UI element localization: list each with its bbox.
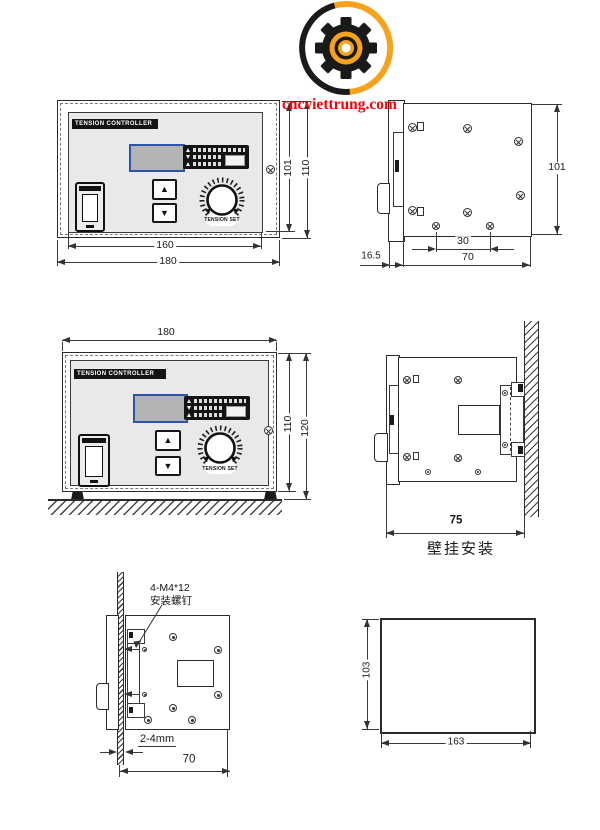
dim-arrow bbox=[381, 740, 389, 746]
side-switch-bump bbox=[374, 433, 388, 462]
dim-line bbox=[386, 533, 524, 534]
screw-icon bbox=[454, 454, 462, 462]
side-switch-bump bbox=[377, 183, 390, 214]
dim-arrow bbox=[364, 619, 370, 627]
extension-line bbox=[278, 491, 296, 492]
dim-arrow bbox=[286, 224, 292, 232]
dim-arrow bbox=[303, 353, 309, 361]
dim-arrow bbox=[62, 337, 70, 343]
dim-arrow bbox=[395, 262, 403, 268]
extension-line bbox=[530, 236, 531, 267]
dim-arrow bbox=[286, 353, 292, 361]
mounting-hole bbox=[144, 716, 152, 724]
screw-icon bbox=[264, 426, 273, 435]
screw-icon bbox=[403, 453, 411, 461]
screw-icon bbox=[266, 165, 275, 174]
extension-line bbox=[362, 729, 379, 730]
extension-line bbox=[62, 342, 63, 351]
extension-line bbox=[276, 342, 277, 351]
indicator-segment bbox=[193, 148, 245, 152]
dim-wall-depth: 75 bbox=[448, 515, 465, 528]
switch-mark bbox=[86, 225, 94, 228]
gear-logo-icon bbox=[296, 0, 396, 100]
dim-depth: 70 bbox=[460, 252, 476, 264]
screw-icon bbox=[463, 124, 472, 133]
dim-bezel-depth: 16.5 bbox=[359, 251, 382, 262]
dim-arrow bbox=[57, 259, 65, 265]
mounting-hole bbox=[214, 691, 222, 699]
dim-arrow bbox=[522, 262, 530, 268]
mounting-hole bbox=[169, 633, 177, 641]
dim-arrow bbox=[272, 259, 280, 265]
dim-arrow bbox=[304, 230, 310, 238]
screw-icon bbox=[454, 376, 462, 384]
dim-height: 110 bbox=[283, 414, 295, 435]
extension-line bbox=[282, 238, 311, 239]
switch-mark bbox=[90, 480, 98, 483]
increase-button[interactable]: ▲ bbox=[152, 179, 177, 200]
mode-indicator-icon bbox=[187, 413, 191, 417]
down-indicator-icon bbox=[187, 406, 191, 410]
indicator-segment bbox=[194, 399, 246, 403]
dim-arrow bbox=[554, 226, 560, 234]
indicator-tag bbox=[226, 406, 246, 417]
mounting-hole bbox=[475, 469, 481, 475]
dim-tail bbox=[498, 249, 514, 250]
dim-inner-width: 160 bbox=[154, 240, 176, 252]
indicator-segment bbox=[194, 406, 222, 410]
cutout-rectangle bbox=[380, 618, 536, 734]
mounting-hole bbox=[169, 704, 177, 712]
screw-icon bbox=[408, 123, 417, 132]
side-connector bbox=[395, 160, 399, 172]
power-switch[interactable] bbox=[75, 182, 105, 232]
screw-icon bbox=[403, 376, 411, 384]
down-arrow-icon: ▼ bbox=[164, 462, 173, 471]
lcd-display bbox=[133, 394, 188, 423]
clamp-screw-shaft bbox=[132, 694, 140, 695]
extension-line bbox=[532, 234, 562, 235]
mounting-hole bbox=[188, 716, 196, 724]
lcd-display bbox=[129, 144, 185, 172]
dim-arrow bbox=[303, 491, 309, 499]
screw-note-line1: 4-M4*12 bbox=[150, 582, 192, 595]
dim-arrow bbox=[253, 243, 261, 249]
knob-label: TENSION SET bbox=[204, 217, 240, 223]
dim-total-height: 120 bbox=[300, 417, 312, 439]
switch-rocker bbox=[82, 194, 98, 222]
dim-panel-height: 101 bbox=[283, 157, 295, 179]
dim-arrow bbox=[490, 246, 498, 252]
dim-tail bbox=[133, 752, 143, 753]
screw-icon bbox=[486, 222, 494, 230]
front-view-table: TENSION CONTROLLER ▲ ▼ TENSION SET bbox=[62, 352, 277, 492]
dim-arrow bbox=[364, 721, 370, 729]
screw-icon bbox=[408, 206, 417, 215]
side-switch-bump bbox=[96, 683, 109, 710]
extension-line bbox=[524, 517, 525, 538]
dim-arrow bbox=[68, 243, 76, 249]
dim-panel-thickness: 2-4mm bbox=[138, 733, 176, 747]
dim-line bbox=[62, 340, 277, 341]
dim-line bbox=[120, 771, 230, 772]
bracket-hole bbox=[142, 692, 147, 697]
dimension-drawing-page: TENSION CONTROLLER ▲ ▼ TENSION SET bbox=[0, 0, 600, 830]
switch-label-strip bbox=[79, 186, 101, 191]
indicator-segment bbox=[193, 162, 221, 166]
mount-slot bbox=[417, 207, 424, 216]
dim-arrow bbox=[382, 262, 390, 268]
switch-rocker bbox=[85, 446, 103, 477]
decrease-button[interactable]: ▼ bbox=[152, 203, 177, 223]
knob-label: TENSION SET bbox=[202, 466, 238, 472]
mounting-hole bbox=[214, 646, 222, 654]
dim-cutout-height: 103 bbox=[362, 660, 373, 681]
bracket-hook-nub bbox=[518, 446, 523, 454]
side-connector bbox=[390, 415, 394, 425]
dim-arrow bbox=[386, 530, 394, 536]
bracket-hole bbox=[502, 390, 508, 396]
leader-line bbox=[128, 602, 168, 652]
dim-arrow bbox=[554, 104, 560, 112]
dim-arrow bbox=[516, 530, 524, 536]
indicator-tag bbox=[225, 155, 245, 166]
dim-arrow bbox=[222, 768, 230, 774]
up-arrow-icon: ▲ bbox=[160, 185, 169, 194]
dim-hole-spacing: 30 bbox=[455, 236, 471, 248]
extension-line bbox=[284, 499, 311, 500]
wall-mount-caption: 壁挂安装 bbox=[427, 538, 495, 559]
mount-slot bbox=[413, 452, 419, 460]
dim-tail bbox=[412, 249, 428, 250]
indicator-segment bbox=[194, 413, 222, 417]
up-indicator-icon bbox=[186, 148, 190, 152]
dim-cutout-width: 163 bbox=[446, 737, 467, 748]
bracket-hole bbox=[502, 442, 508, 448]
dim-line bbox=[436, 249, 490, 250]
increase-button[interactable]: ▲ bbox=[155, 430, 181, 451]
screw-icon bbox=[463, 208, 472, 217]
terminal-cutout bbox=[177, 660, 214, 687]
side-bezel bbox=[106, 615, 119, 730]
indicator-segment bbox=[193, 155, 221, 159]
decrease-button[interactable]: ▼ bbox=[155, 456, 181, 476]
mount-slot bbox=[417, 122, 424, 131]
up-indicator-icon bbox=[187, 399, 191, 403]
dim-width: 180 bbox=[155, 327, 177, 339]
device-title: TENSION CONTROLLER bbox=[74, 369, 166, 379]
dim-arrow bbox=[125, 749, 133, 755]
dim-outer-width: 180 bbox=[157, 256, 179, 268]
dim-outer-height: 110 bbox=[301, 158, 313, 179]
dim-arrow bbox=[523, 740, 531, 746]
up-arrow-icon: ▲ bbox=[164, 436, 173, 445]
ground-hatching bbox=[48, 499, 282, 515]
device-title: TENSION CONTROLLER bbox=[72, 119, 158, 129]
dim-arrow bbox=[286, 483, 292, 491]
wall-hatching bbox=[524, 321, 539, 517]
indicator-panel bbox=[183, 145, 249, 169]
down-arrow-icon: ▼ bbox=[160, 209, 169, 218]
mode-indicator-icon bbox=[186, 162, 190, 166]
power-switch[interactable] bbox=[78, 434, 110, 487]
clamp-hook-nub bbox=[129, 707, 133, 713]
dim-side-height: 101 bbox=[546, 162, 568, 174]
screw-icon bbox=[514, 137, 523, 146]
extension-line bbox=[261, 233, 262, 249]
terminal-cutout bbox=[458, 405, 500, 435]
mount-slot bbox=[413, 375, 419, 383]
front-view-top: TENSION CONTROLLER ▲ ▼ TENSION SET bbox=[57, 100, 280, 238]
dim-arrow bbox=[120, 768, 128, 774]
dim-mount-depth: 70 bbox=[181, 754, 198, 767]
dim-arrow bbox=[269, 337, 277, 343]
watermark-text: cncviettrung.com bbox=[282, 96, 397, 114]
dim-arrow bbox=[428, 246, 436, 252]
screw-icon bbox=[432, 222, 440, 230]
switch-label-strip bbox=[82, 438, 106, 443]
dim-arrow bbox=[109, 749, 117, 755]
screw-icon bbox=[516, 191, 525, 200]
extension-line bbox=[403, 236, 404, 267]
down-indicator-icon bbox=[186, 155, 190, 159]
indicator-panel bbox=[184, 396, 250, 420]
bracket-hook-nub bbox=[518, 384, 523, 392]
clamp-screw-arrow bbox=[124, 691, 132, 697]
mounting-hole bbox=[425, 469, 431, 475]
